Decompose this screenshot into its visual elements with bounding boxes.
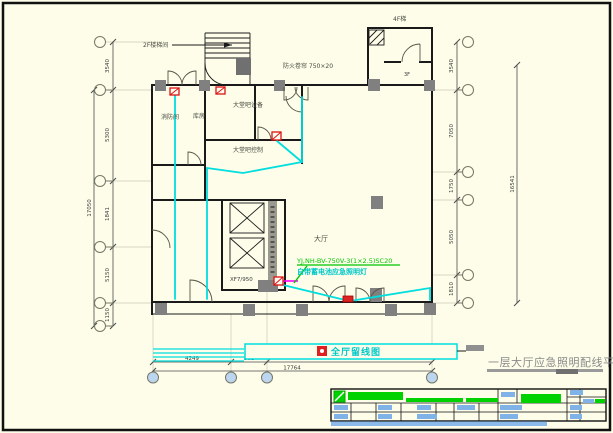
dim-left-5: 1150 (105, 308, 111, 322)
upper-stair-note-label: 4F梯 (393, 15, 406, 23)
dim-right-total: 16541 (510, 175, 516, 193)
room-fire-label: 消防间 (161, 113, 179, 121)
drawing-title: 一层大厅应急照明配线平面图 (488, 355, 613, 369)
elevator-label: XF7/950 (230, 277, 253, 283)
dim-left-3: 1841 (105, 207, 111, 221)
room-lobby-ctrl-label: 大堂吧控制 (233, 146, 263, 154)
dim-right-2: 7050 (449, 124, 455, 138)
floor-plan-drawing: 3540 5300 1841 5150 1150 17050 3540 7050… (0, 0, 613, 433)
room-store-label: 库房 (193, 112, 205, 120)
drawing-title-group: 一层大厅应急照明配线平面图 (487, 355, 613, 374)
stair-note-label: 2F楼梯间 (143, 41, 168, 49)
room-3f-label: 3F (404, 72, 410, 78)
dim-right-1: 3540 (449, 59, 455, 73)
dim-bottom-total: 17764 (283, 366, 301, 372)
wire-note-label: 自带蓄电池应急照明灯 (297, 267, 367, 276)
lintel-note-label: 防火卷帘 750×20 (283, 62, 333, 70)
wire-spec-label: YJ,NH-BV-750V-3(1×2.5)SC20 (296, 257, 392, 265)
company-name-blob (348, 392, 403, 400)
dimension-left: 3540 5300 1841 5150 1150 17050 (87, 39, 116, 329)
dim-left-total: 17050 (87, 199, 93, 217)
bottom-blue-bar (331, 422, 547, 427)
scale-marker (466, 345, 484, 351)
dim-right-5: 1810 (449, 282, 455, 296)
hall-label: 大厅 (314, 234, 328, 243)
building-walls (152, 28, 436, 316)
room-lobby-equip-label: 大堂吧设备 (233, 101, 263, 109)
cad-sheet: 3540 5300 1841 5150 1150 17050 3540 7050… (0, 0, 613, 433)
grid-lines (106, 42, 457, 372)
title-block-content-blobs (334, 390, 605, 419)
project-name-blob (521, 394, 561, 403)
dim-left-4: 5150 (105, 268, 111, 282)
dim-right-4: 5050 (449, 230, 455, 244)
reserve-label: 全厅留线图 (330, 346, 381, 358)
dim-left-2: 5300 (105, 128, 111, 142)
dim-left-1: 3540 (105, 59, 111, 73)
entrance-steps: 全厅留线图 (153, 344, 484, 361)
title-block (331, 389, 606, 426)
dim-right-3: 1750 (449, 179, 455, 193)
